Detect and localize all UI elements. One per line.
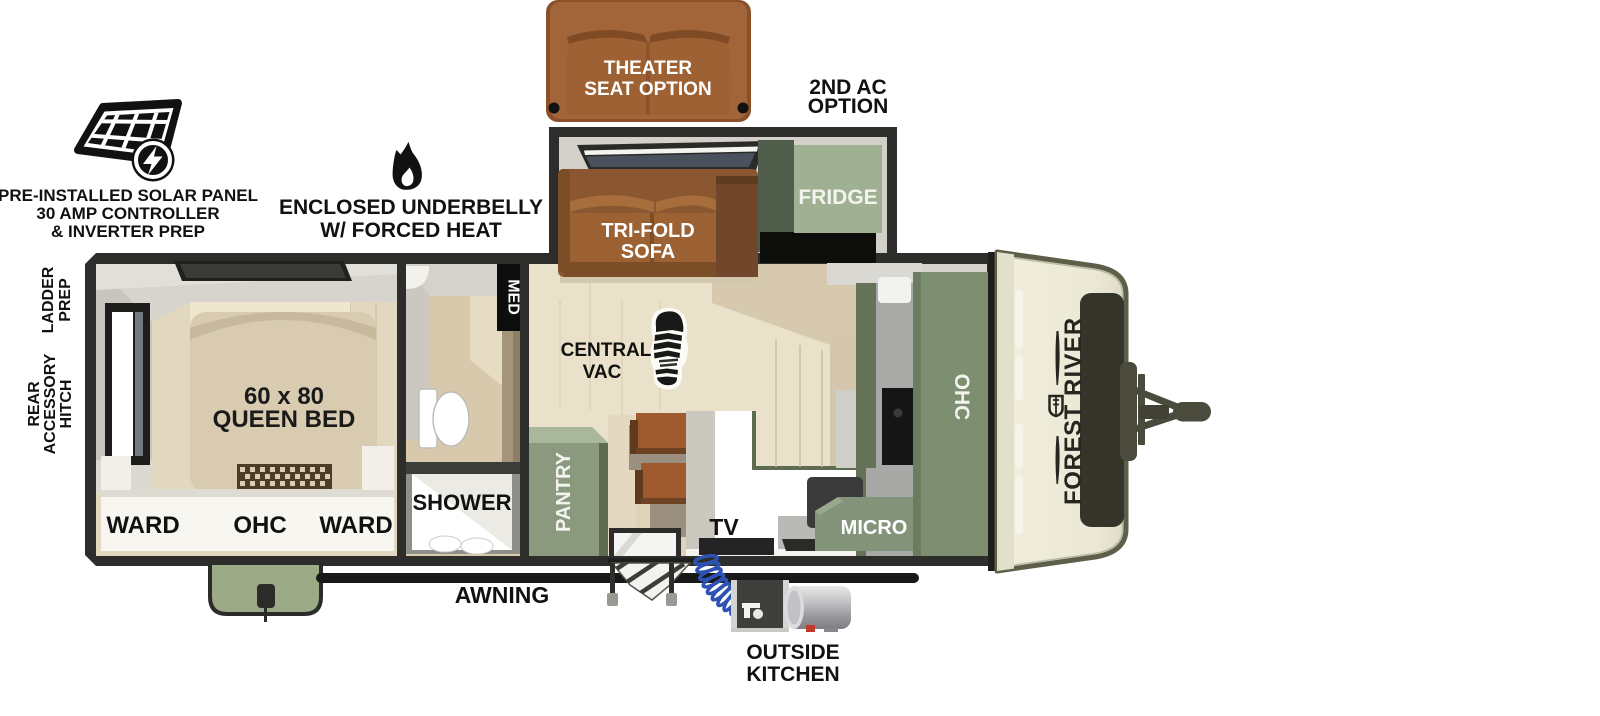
svg-text:QUEEN BED: QUEEN BED: [213, 406, 356, 433]
svg-text:CENTRAL: CENTRAL: [561, 340, 652, 361]
svg-text:OHC: OHC: [950, 374, 973, 421]
svg-text:PRE-INSTALLED SOLAR PANEL: PRE-INSTALLED SOLAR PANEL: [0, 186, 258, 205]
svg-text:OUTSIDE: OUTSIDE: [746, 641, 839, 664]
svg-text:THEATER: THEATER: [604, 58, 693, 79]
svg-text:ENCLOSED UNDERBELLY: ENCLOSED UNDERBELLY: [279, 196, 543, 219]
svg-text:PANTRY: PANTRY: [553, 451, 575, 532]
svg-text:OPTION: OPTION: [808, 95, 889, 118]
svg-text:MED: MED: [505, 279, 522, 315]
svg-text:30 AMP CONTROLLER: 30 AMP CONTROLLER: [36, 204, 219, 223]
svg-text:AWNING: AWNING: [455, 582, 550, 608]
svg-text:& INVERTER PREP: & INVERTER PREP: [51, 222, 205, 241]
svg-text:WARD: WARD: [319, 512, 392, 539]
svg-text:FOREST: FOREST: [1060, 404, 1087, 505]
svg-text:ACCESSORY: ACCESSORY: [42, 353, 59, 454]
svg-text:RIVER: RIVER: [1060, 317, 1087, 396]
svg-text:PREP: PREP: [57, 278, 74, 322]
svg-text:KITCHEN: KITCHEN: [746, 663, 839, 686]
svg-text:REAR: REAR: [26, 381, 43, 427]
svg-text:FRIDGE: FRIDGE: [798, 186, 877, 209]
svg-text:OHC: OHC: [233, 512, 286, 539]
svg-text:TV: TV: [709, 514, 739, 540]
svg-text:TRI-FOLD: TRI-FOLD: [601, 220, 694, 242]
svg-text:SHOWER: SHOWER: [413, 490, 512, 515]
svg-text:MICRO: MICRO: [841, 517, 908, 539]
svg-text:VAC: VAC: [583, 362, 622, 383]
svg-text:WARD: WARD: [106, 512, 179, 539]
svg-text:LADDER: LADDER: [40, 266, 57, 333]
svg-text:SEAT OPTION: SEAT OPTION: [584, 79, 711, 100]
svg-text:HITCH: HITCH: [58, 380, 75, 429]
svg-text:SOFA: SOFA: [621, 241, 675, 263]
svg-text:W/ FORCED HEAT: W/ FORCED HEAT: [320, 219, 502, 242]
